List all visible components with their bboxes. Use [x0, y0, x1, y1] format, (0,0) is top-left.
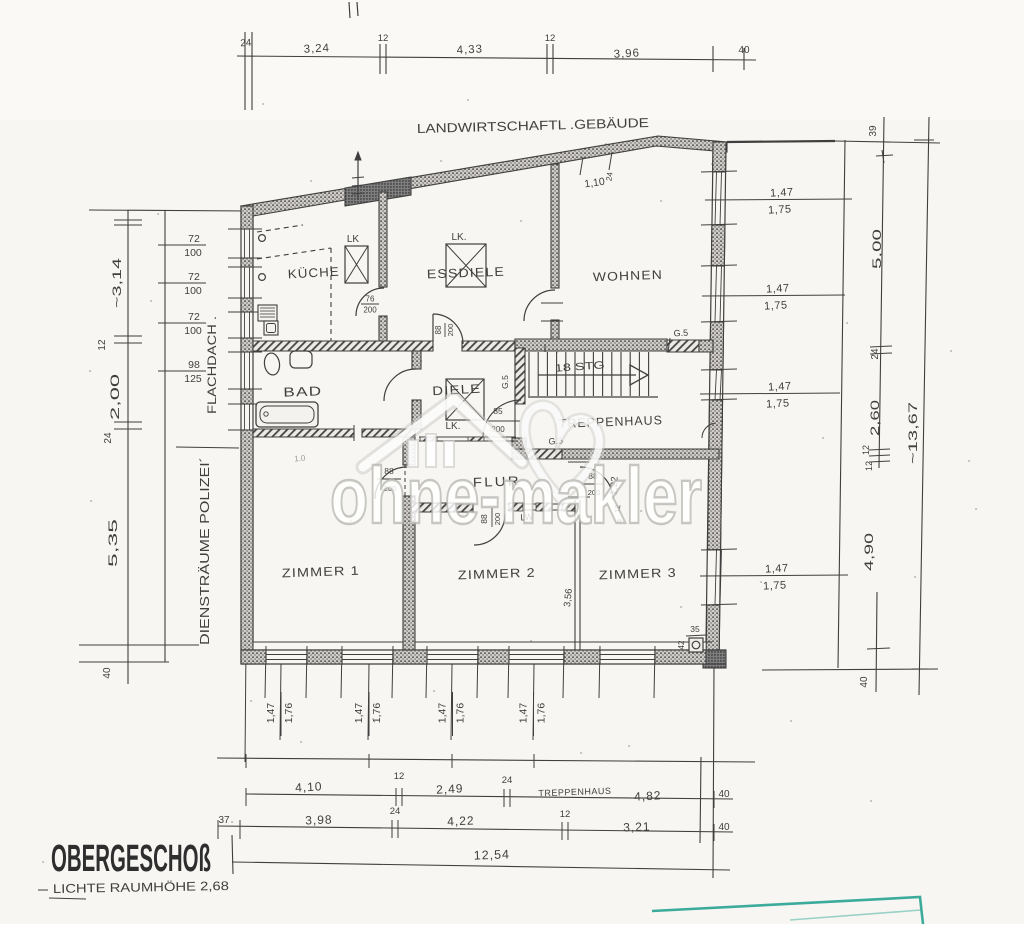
svg-text:~3,14: ~3,14: [112, 257, 124, 308]
svg-text:WOHNEN: WOHNEN: [593, 268, 663, 284]
svg-text:37: 37: [218, 815, 230, 826]
svg-text:12: 12: [864, 461, 874, 471]
svg-text:3,21: 3,21: [623, 820, 651, 835]
svg-text:3,98: 3,98: [305, 813, 333, 828]
svg-text:2,60: 2,60: [870, 400, 882, 436]
svg-text:85: 85: [493, 406, 503, 416]
svg-text:LK.: LK.: [451, 232, 466, 243]
svg-text:G.5: G.5: [500, 375, 510, 389]
svg-text:1,47: 1,47: [766, 282, 790, 295]
svg-text:1,75: 1,75: [764, 299, 788, 312]
svg-text:FLACHDACH .: FLACHDACH .: [205, 316, 219, 414]
svg-text:1,76: 1,76: [455, 703, 467, 724]
svg-text:1,47: 1,47: [768, 380, 792, 393]
svg-text:24: 24: [502, 775, 513, 786]
svg-text:76: 76: [366, 295, 375, 304]
svg-text:2,00: 2,00: [110, 374, 122, 420]
svg-text:72: 72: [188, 271, 200, 283]
svg-text:1,75: 1,75: [763, 579, 787, 592]
svg-text:ZIMMER 3: ZIMMER 3: [599, 566, 677, 583]
svg-text:24: 24: [103, 432, 114, 444]
svg-text:24: 24: [604, 171, 614, 182]
svg-text:40: 40: [718, 789, 730, 800]
svg-text:200: 200: [363, 306, 377, 315]
svg-text:1,75: 1,75: [766, 397, 790, 410]
svg-text:1,47: 1,47: [265, 703, 277, 724]
svg-text:88: 88: [434, 325, 443, 334]
svg-text:4,10: 4,10: [295, 779, 323, 794]
svg-text:1,47: 1,47: [765, 562, 789, 575]
svg-text:12: 12: [378, 33, 389, 44]
svg-text:1,47: 1,47: [518, 703, 530, 724]
svg-text:5,35: 5,35: [108, 519, 120, 567]
svg-text:4,90: 4,90: [864, 533, 876, 571]
svg-text:98: 98: [188, 359, 200, 371]
svg-text:1,47: 1,47: [770, 186, 794, 199]
svg-text:1,76: 1,76: [283, 703, 295, 724]
svg-text:ohne-makler: ohne-makler: [330, 451, 702, 540]
svg-text:72: 72: [188, 311, 200, 323]
svg-text:2,49: 2,49: [436, 781, 464, 796]
svg-text:40: 40: [738, 45, 750, 56]
svg-text:100: 100: [184, 247, 202, 259]
svg-text:~13,67: ~13,67: [906, 401, 920, 464]
svg-text:ZIMMER 2: ZIMMER 2: [458, 566, 536, 583]
svg-text:12: 12: [97, 339, 108, 351]
svg-text:40: 40: [718, 822, 730, 833]
svg-text:ZIMMER 1: ZIMMER 1: [282, 564, 360, 581]
svg-text:100: 100: [184, 325, 202, 337]
svg-text:24: 24: [870, 348, 881, 360]
svg-text:1.0: 1.0: [294, 453, 306, 463]
svg-text:1,76: 1,76: [536, 703, 548, 724]
svg-text:LK.: LK.: [445, 421, 460, 432]
svg-text:3,24: 3,24: [303, 42, 330, 55]
svg-text:4,33: 4,33: [456, 43, 483, 56]
svg-text:3,96: 3,96: [613, 47, 640, 60]
svg-text:5,00: 5,00: [872, 229, 884, 269]
svg-text:12: 12: [861, 445, 871, 455]
svg-text:200: 200: [446, 324, 455, 337]
svg-text:35: 35: [690, 624, 700, 634]
svg-text:39: 39: [868, 125, 879, 137]
svg-text:1,75: 1,75: [768, 203, 792, 216]
svg-text:12,54: 12,54: [473, 847, 510, 862]
svg-text:1,47: 1,47: [437, 703, 449, 724]
svg-text:12: 12: [545, 33, 556, 44]
svg-text:3,56: 3,56: [562, 588, 575, 608]
svg-text:24: 24: [240, 38, 252, 50]
svg-text:4,82: 4,82: [634, 788, 662, 803]
svg-text:40: 40: [102, 667, 113, 679]
svg-text:KÜCHE: KÜCHE: [287, 265, 340, 282]
svg-text:42: 42: [677, 640, 686, 649]
svg-text:72: 72: [188, 233, 200, 245]
svg-text:BAD: BAD: [283, 383, 322, 399]
svg-text:40: 40: [859, 676, 870, 688]
svg-text:OBERGESCHOß: OBERGESCHOß: [51, 838, 211, 880]
svg-text:LK: LK: [347, 234, 360, 245]
svg-text:125: 125: [184, 373, 202, 385]
svg-text:12: 12: [394, 771, 405, 782]
svg-text:24: 24: [390, 806, 401, 817]
svg-text:1,76: 1,76: [371, 703, 383, 724]
svg-text:ESSDIELE: ESSDIELE: [427, 265, 505, 282]
svg-text:12: 12: [560, 809, 571, 820]
svg-text:DIENSTRÄUME POLIZEI´: DIENSTRÄUME POLIZEI´: [198, 457, 212, 645]
svg-text:G.5: G.5: [673, 328, 688, 339]
svg-text:100: 100: [184, 285, 202, 297]
svg-text:4,22: 4,22: [447, 814, 475, 829]
svg-text:1,47: 1,47: [353, 703, 365, 724]
